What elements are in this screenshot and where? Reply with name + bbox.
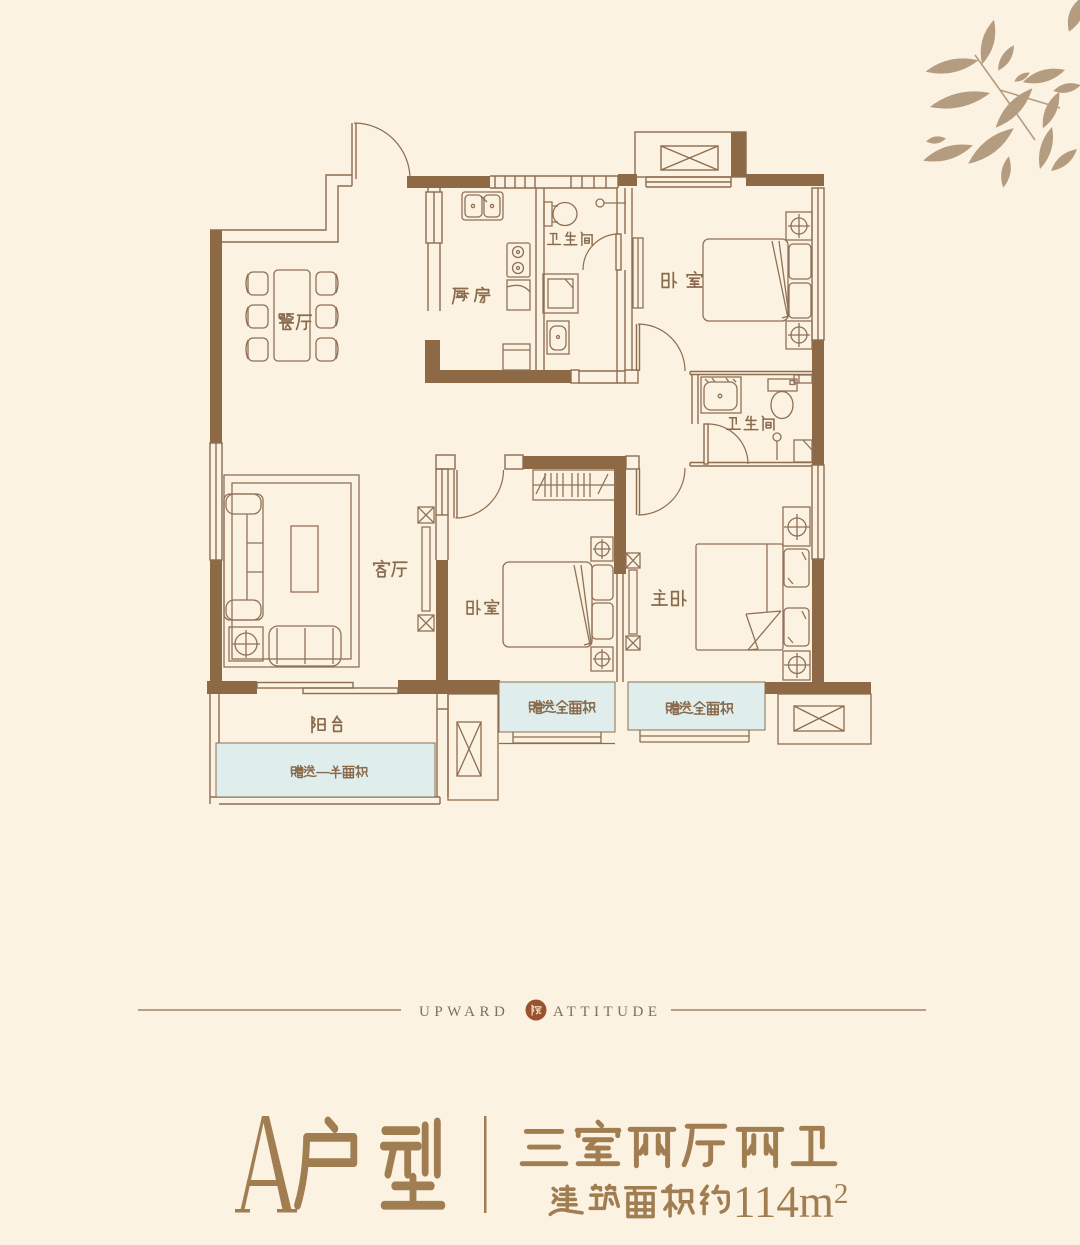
svg-text:ATTITUDE: ATTITUDE: [553, 1004, 661, 1020]
svg-text:114m2: 114m2: [733, 1177, 848, 1227]
svg-text:UPWARD: UPWARD: [419, 1004, 509, 1020]
